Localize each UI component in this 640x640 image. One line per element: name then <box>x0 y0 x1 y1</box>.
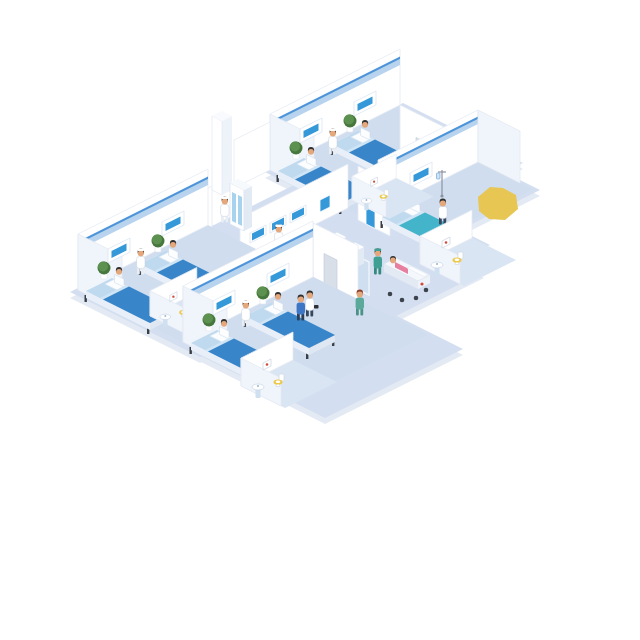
illustration-canvas <box>0 0 640 640</box>
cabinet-nurse <box>221 196 229 222</box>
hospital-illustration <box>0 0 640 640</box>
medicine-cabinet <box>230 179 252 231</box>
corridor-wall-column <box>234 122 270 188</box>
column <box>212 111 232 195</box>
